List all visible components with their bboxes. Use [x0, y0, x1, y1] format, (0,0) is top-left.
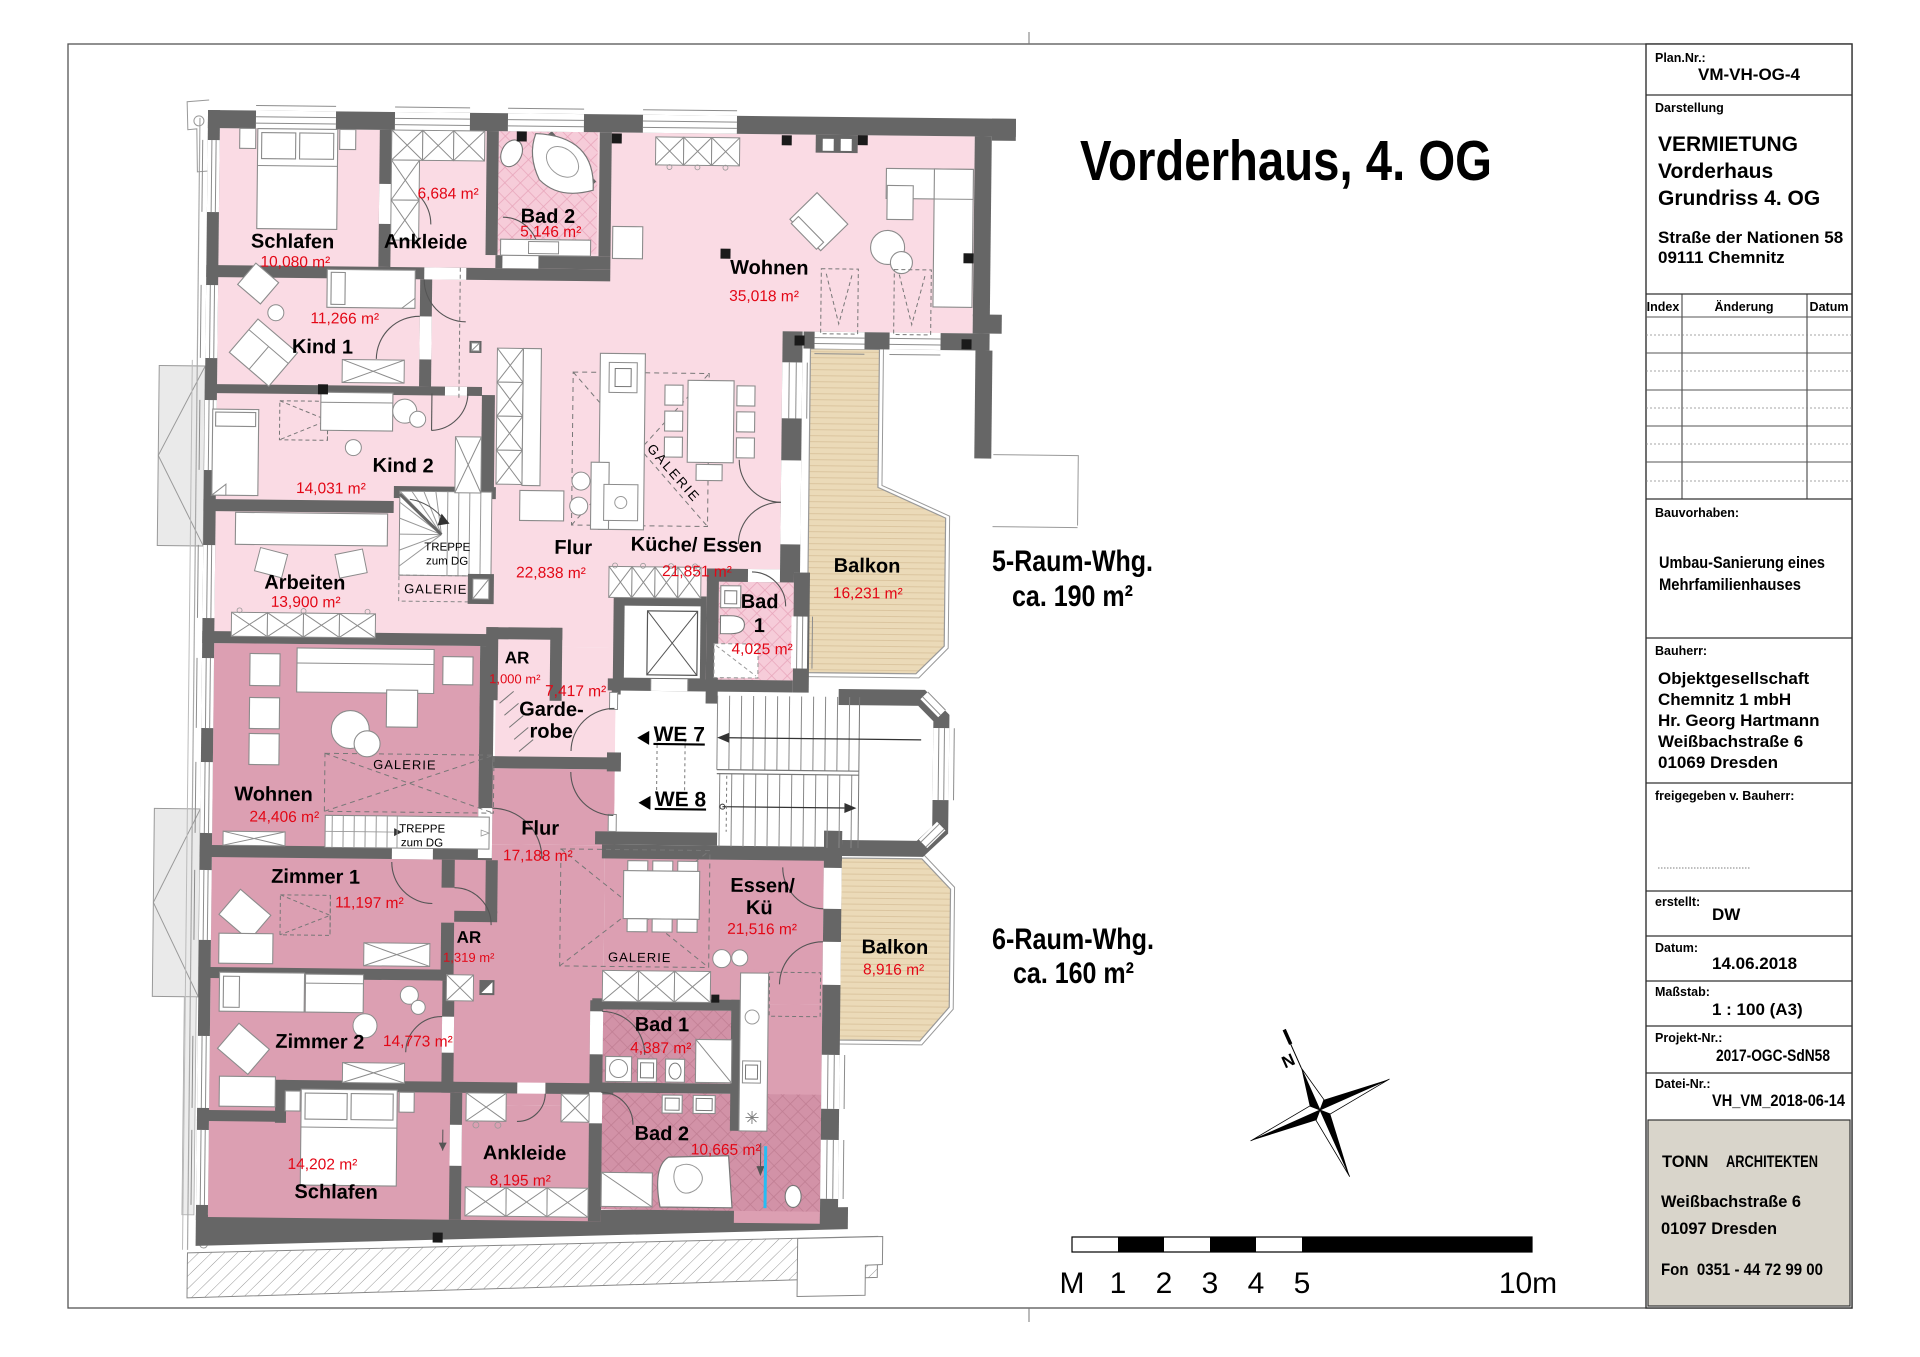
svg-text:Fon 0351 - 44 72 99 00: Fon 0351 - 44 72 99 00: [1661, 1261, 1823, 1279]
svg-text:Chemnitz 1 mbH: Chemnitz 1 mbH: [1658, 690, 1791, 709]
svg-text:14.06.2018: 14.06.2018: [1712, 954, 1797, 973]
svg-text:Grundriss 4. OG: Grundriss 4. OG: [1658, 187, 1820, 210]
svg-text:1 : 100 (A3): 1 : 100 (A3): [1712, 1000, 1803, 1019]
svg-text:Schlafen: Schlafen: [251, 230, 335, 253]
svg-text:Weißbachstraße 6: Weißbachstraße 6: [1661, 1193, 1801, 1211]
svg-text:WE 8: WE 8: [655, 788, 707, 812]
svg-text:Vorderhaus, 4. OG: Vorderhaus, 4. OG: [1080, 129, 1492, 193]
svg-text:VM-VH-OG-4: VM-VH-OG-4: [1698, 65, 1801, 84]
svg-text:Arbeiten: Arbeiten: [264, 572, 345, 595]
svg-text:Bad: Bad: [741, 591, 779, 613]
svg-text:zum DG: zum DG: [426, 555, 468, 567]
svg-text:2: 2: [1156, 1267, 1173, 1300]
svg-text:4,387 m²: 4,387 m²: [630, 1040, 691, 1058]
svg-text:Plan.Nr.:: Plan.Nr.:: [1655, 51, 1706, 65]
svg-text:Zimmer 2: Zimmer 2: [275, 1031, 364, 1054]
svg-text:DW: DW: [1712, 905, 1741, 924]
svg-text:10m: 10m: [1499, 1267, 1557, 1300]
svg-text:1,000 m²: 1,000 m²: [489, 671, 541, 687]
svg-text:10,080 m²: 10,080 m²: [260, 254, 330, 272]
svg-text:6,684 m²: 6,684 m²: [417, 185, 478, 203]
svg-text:Wohnen: Wohnen: [730, 257, 809, 280]
svg-text:TREPPE: TREPPE: [424, 541, 470, 554]
svg-text:6-Raum-Whg.: 6-Raum-Whg.: [992, 923, 1154, 956]
svg-text:Änderung: Änderung: [1714, 299, 1773, 314]
svg-text:ca. 190 m²: ca. 190 m²: [1012, 580, 1133, 613]
svg-text:01069 Dresden: 01069 Dresden: [1658, 753, 1778, 772]
svg-text:8,916 m²: 8,916 m²: [863, 961, 924, 979]
svg-text:35,018 m²: 35,018 m²: [729, 288, 799, 306]
svg-text:Kind 1: Kind 1: [292, 336, 353, 359]
svg-text:Balkon: Balkon: [861, 936, 928, 959]
svg-text:Ankleide: Ankleide: [384, 231, 468, 254]
svg-text:Wohnen: Wohnen: [234, 783, 313, 806]
svg-text:Bauherr:: Bauherr:: [1655, 644, 1707, 658]
svg-text:Straße der Nationen 58: Straße der Nationen 58: [1658, 228, 1843, 247]
svg-text:AR: AR: [505, 648, 530, 667]
svg-text:Bad 2: Bad 2: [634, 1123, 689, 1146]
svg-text:Projekt-Nr.:: Projekt-Nr.:: [1655, 1031, 1722, 1045]
svg-text:GALERIE: GALERIE: [404, 581, 468, 597]
svg-text:VH_VM_2018-06-14: VH_VM_2018-06-14: [1712, 1091, 1845, 1110]
svg-text:11,197 m²: 11,197 m²: [335, 894, 404, 912]
svg-text:21,516 m²: 21,516 m²: [727, 921, 797, 939]
svg-text:3: 3: [1202, 1267, 1219, 1300]
svg-text:Flur: Flur: [554, 537, 592, 559]
svg-text:Index: Index: [1647, 300, 1680, 314]
svg-text:Zimmer 1: Zimmer 1: [271, 866, 360, 889]
svg-text:robe: robe: [529, 721, 573, 743]
svg-text:M: M: [1060, 1267, 1085, 1300]
svg-text:4,025 m²: 4,025 m²: [731, 641, 792, 659]
svg-text:Vorderhaus: Vorderhaus: [1658, 160, 1773, 183]
svg-text:22,838 m²: 22,838 m²: [516, 564, 586, 582]
svg-text:TREPPE: TREPPE: [399, 823, 445, 836]
svg-text:Darstellung: Darstellung: [1655, 101, 1724, 115]
svg-text:Balkon: Balkon: [834, 555, 901, 578]
svg-text:14,031 m²: 14,031 m²: [296, 480, 366, 498]
svg-text:11,266 m²: 11,266 m²: [310, 310, 379, 328]
svg-text:Essen/: Essen/: [730, 875, 795, 898]
svg-text:Kind 2: Kind 2: [372, 455, 433, 478]
svg-text:ARCHITEKTEN: ARCHITEKTEN: [1726, 1153, 1818, 1171]
svg-text:4: 4: [1248, 1267, 1265, 1300]
svg-text:Maßstab:: Maßstab:: [1655, 985, 1710, 999]
svg-text:VERMIETUNG: VERMIETUNG: [1658, 133, 1798, 156]
svg-text:8,195 m²: 8,195 m²: [490, 1172, 551, 1190]
svg-text:Datum:: Datum:: [1655, 941, 1698, 955]
svg-text:10,665 m²: 10,665 m²: [691, 1141, 761, 1159]
svg-text:Datei-Nr.:: Datei-Nr.:: [1655, 1077, 1711, 1091]
svg-text:1: 1: [1110, 1267, 1127, 1300]
svg-text:16,231 m²: 16,231 m²: [833, 585, 903, 603]
svg-text:1,319 m²: 1,319 m²: [443, 950, 495, 966]
svg-text:Umbau-Sanierung eines: Umbau-Sanierung eines: [1659, 553, 1825, 572]
svg-text:5,146 m²: 5,146 m²: [520, 223, 581, 241]
svg-text:TONN: TONN: [1662, 1153, 1708, 1171]
svg-text:2017-OGC-SdN58: 2017-OGC-SdN58: [1716, 1046, 1830, 1065]
svg-text:GALERIE: GALERIE: [373, 757, 437, 773]
svg-text:14,202 m²: 14,202 m²: [287, 1156, 357, 1174]
svg-text:Ankleide: Ankleide: [483, 1142, 567, 1165]
svg-text:Garde-: Garde-: [519, 698, 584, 721]
svg-text:13,900 m²: 13,900 m²: [271, 594, 341, 612]
svg-text:Objektgesellschaft: Objektgesellschaft: [1658, 669, 1810, 688]
svg-text:Flur: Flur: [521, 817, 559, 839]
svg-text:Mehrfamilienhauses: Mehrfamilienhauses: [1659, 575, 1801, 594]
svg-text:GALERIE: GALERIE: [608, 949, 672, 965]
svg-text:24,406 m²: 24,406 m²: [249, 808, 319, 826]
svg-text:14,773 m²: 14,773 m²: [383, 1033, 453, 1051]
svg-text:zum DG: zum DG: [401, 837, 443, 849]
svg-text:AR: AR: [457, 928, 482, 947]
svg-text:Weißbachstraße 6: Weißbachstraße 6: [1658, 732, 1803, 751]
svg-text:Bauvorhaben:: Bauvorhaben:: [1655, 506, 1739, 520]
svg-text:09111 Chemnitz: 09111 Chemnitz: [1658, 248, 1785, 267]
svg-text:17,188 m²: 17,188 m²: [503, 847, 573, 865]
svg-text:1: 1: [754, 615, 765, 637]
svg-text:5: 5: [1294, 1267, 1311, 1300]
svg-text:ca. 160 m²: ca. 160 m²: [1013, 957, 1134, 990]
svg-text:Schlafen: Schlafen: [294, 1181, 378, 1204]
svg-text:Küche/ Essen: Küche/ Essen: [631, 534, 762, 557]
svg-text:01097 Dresden: 01097 Dresden: [1661, 1220, 1777, 1238]
svg-text:Bad 1: Bad 1: [635, 1014, 690, 1037]
svg-text:Datum: Datum: [1810, 300, 1849, 314]
svg-text:Kü: Kü: [746, 897, 773, 919]
svg-text:7,417 m²: 7,417 m²: [545, 683, 606, 701]
svg-text:freigegeben v. Bauherr:: freigegeben v. Bauherr:: [1655, 789, 1794, 803]
svg-text:WE 7: WE 7: [653, 723, 705, 747]
svg-text:5-Raum-Whg.: 5-Raum-Whg.: [992, 545, 1153, 578]
svg-text:21,851 m²: 21,851 m²: [662, 563, 732, 581]
svg-text:erstellt:: erstellt:: [1655, 895, 1700, 909]
svg-text:Hr. Georg Hartmann: Hr. Georg Hartmann: [1658, 711, 1820, 730]
